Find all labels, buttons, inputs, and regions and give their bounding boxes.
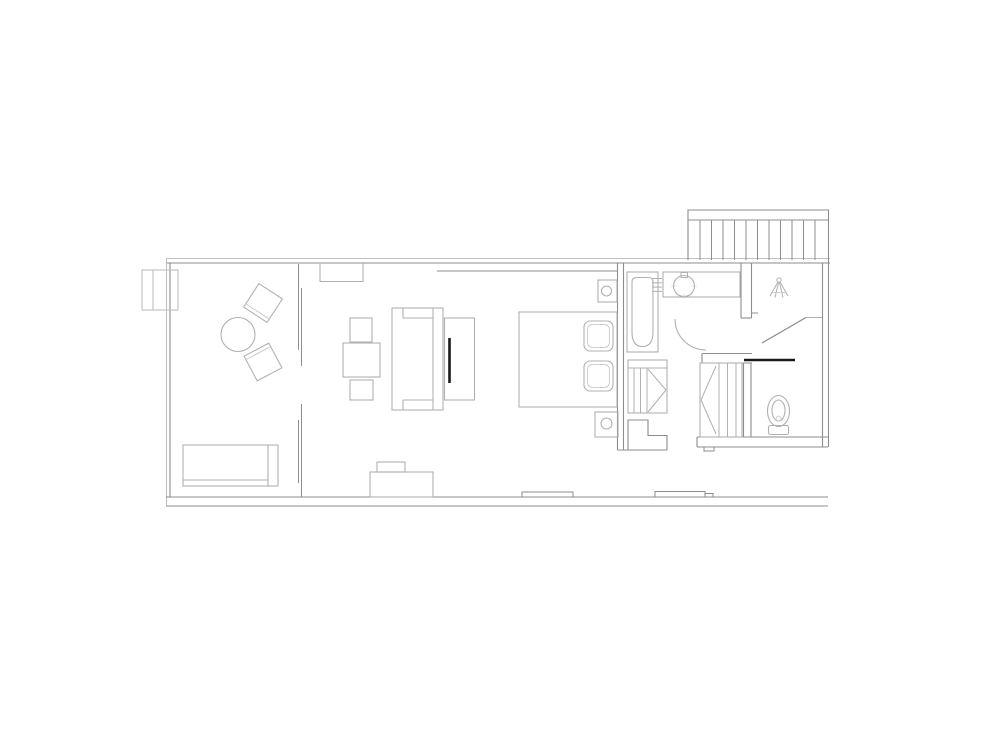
threshold-entry-bar: [655, 492, 705, 498]
threshold-living: [522, 492, 573, 497]
bathtub-inner: [632, 278, 653, 347]
nightstand-top: [598, 280, 617, 302]
wall-shelf: [320, 263, 363, 282]
pillow-2-inner: [588, 365, 610, 388]
entry-box-lower: [370, 472, 433, 497]
closet-toilet-room-chevron-bottom: [701, 400, 716, 434]
entry-box-upper: [377, 462, 405, 472]
shower-head: [777, 278, 781, 282]
toilet-bowl-inner: [772, 400, 785, 421]
dining-chair-top: [350, 318, 372, 342]
balcony-outline: [688, 210, 829, 260]
pillow-1-inner: [588, 325, 610, 348]
nightstand-top-lamp: [602, 286, 612, 296]
closet-toilet-room-chevron-top: [701, 366, 716, 400]
floor-plan-svg: [0, 0, 1000, 750]
dining-chair-bottom: [350, 380, 373, 400]
vanity-counter: [663, 272, 740, 297]
bathroom-door-arc: [675, 319, 706, 350]
nightstand-bottom-lamp: [601, 418, 612, 429]
pillow-2: [584, 361, 613, 391]
toilet-drain: [776, 416, 781, 421]
shower-door-diagonal: [762, 318, 806, 344]
closet-bedside-chevron-top: [648, 369, 666, 390]
floor-plan-page: [0, 0, 1000, 750]
pilaster-box: [142, 270, 178, 310]
threshold-entry-tab: [705, 494, 713, 498]
sink-basin: [674, 276, 695, 297]
pillow-1: [584, 321, 613, 351]
dining-table: [343, 343, 380, 377]
armchair-2: [244, 343, 282, 381]
bed-outline: [519, 312, 617, 407]
bath-entry-step-wall: [628, 420, 667, 450]
closet-bedside-chevron-bottom: [648, 390, 666, 412]
armchair-1: [244, 284, 283, 323]
toilet-room-bottom-wall-tab: [704, 447, 714, 451]
sofa-outline: [392, 308, 443, 410]
nightstand-bottom: [595, 412, 618, 437]
round-side-table: [221, 318, 255, 352]
